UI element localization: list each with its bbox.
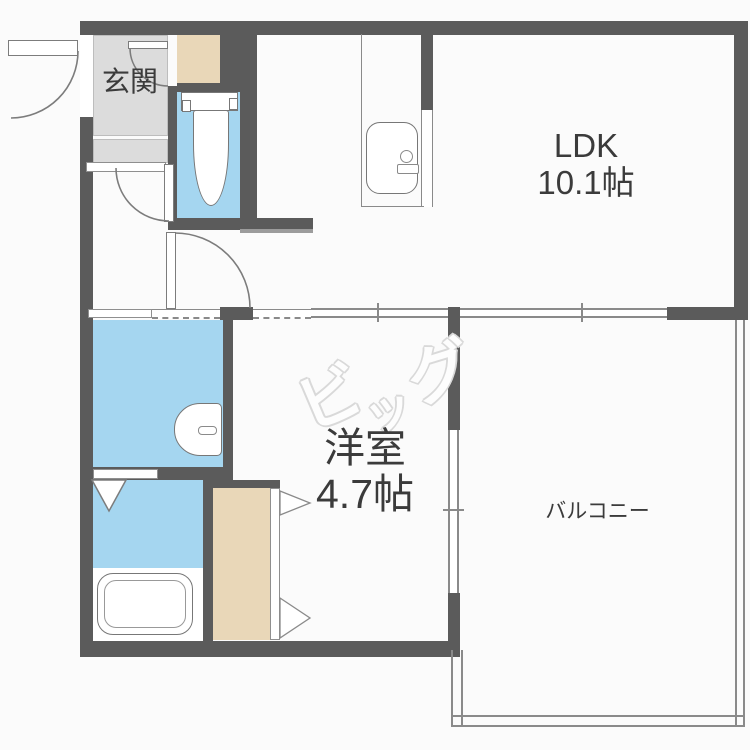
entrance-door-arc — [11, 51, 78, 118]
western-room-name: 洋室 — [275, 426, 455, 472]
ldk-area: 10.1帖 — [505, 165, 667, 202]
hall-door-arc — [116, 168, 169, 221]
closet-folding-door-mark — [280, 598, 310, 638]
bathroom-door-mark — [92, 480, 126, 511]
ldk-label: LDK 10.1帖 — [505, 128, 667, 202]
floor-plan: ビッグ 玄関 LDK 10.1帖 洋室 4.7帖 バルコニー — [0, 0, 750, 750]
ldk-name: LDK — [505, 128, 667, 165]
western-room-label: 洋室 4.7帖 — [275, 426, 455, 518]
balcony-label: バルコニー — [515, 500, 680, 524]
western-room-area: 4.7帖 — [275, 472, 455, 518]
ldk-door-arc — [175, 233, 250, 308]
genkan-label: 玄関 — [95, 66, 165, 97]
